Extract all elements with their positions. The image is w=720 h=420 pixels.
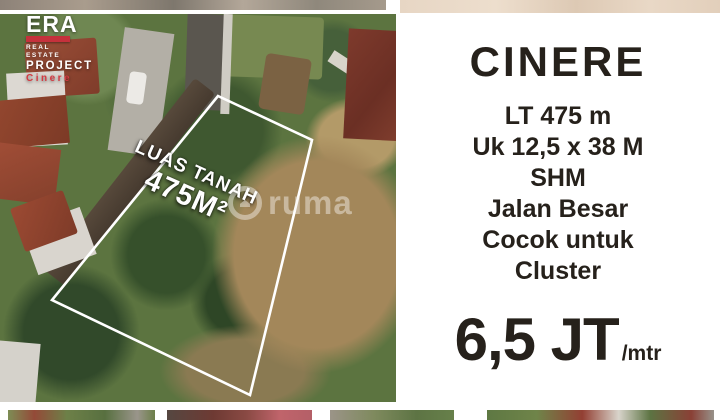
detail-suitable-2: Cluster — [398, 256, 718, 287]
detail-land-area: LT 475 m — [398, 101, 718, 132]
price-row: 6,5 JT /mtr — [398, 309, 718, 371]
bottom-thumbnail — [167, 410, 312, 420]
price-unit: /mtr — [622, 342, 662, 371]
detail-road: Jalan Besar — [398, 194, 718, 225]
listing-title: CINERE — [398, 38, 718, 86]
detail-dimensions: Uk 12,5 x 38 M — [398, 132, 718, 163]
brand-tagline: REAL ESTATE — [26, 44, 86, 60]
brand-location-line: Cinere — [26, 73, 86, 85]
detail-suitable-1: Cocok untuk — [398, 225, 718, 256]
listing-panel: CINERE LT 475 m Uk 12,5 x 38 M SHM Jalan… — [396, 13, 720, 409]
price-value: 6,5 JT — [455, 309, 619, 371]
detail-certificate: SHM — [398, 163, 718, 194]
watermark: ruma — [228, 184, 353, 222]
brand-name: ERA — [26, 14, 86, 34]
brand-logo: ERA REAL ESTATE PROJECT Cinere — [26, 14, 86, 85]
bottom-thumbnail — [8, 410, 155, 420]
listing-flyer: LUAS TANAH 475M² ruma ERA REAL ESTATE PR… — [0, 0, 720, 420]
bottom-thumbnail — [487, 410, 714, 420]
listing-panel-content: CINERE LT 475 m Uk 12,5 x 38 M SHM Jalan… — [398, 13, 718, 371]
watermark-house-icon — [228, 186, 262, 220]
aerial-photo: LUAS TANAH 475M² ruma ERA REAL ESTATE PR… — [0, 14, 396, 402]
top-photo-strip-left — [0, 0, 386, 10]
watermark-text: ruma — [268, 184, 353, 222]
listing-details: LT 475 m Uk 12,5 x 38 M SHM Jalan Besar … — [398, 101, 718, 287]
top-photo-strip-right — [400, 0, 720, 13]
bottom-thumbnail — [330, 410, 454, 420]
brand-project-line: PROJECT — [26, 60, 86, 73]
